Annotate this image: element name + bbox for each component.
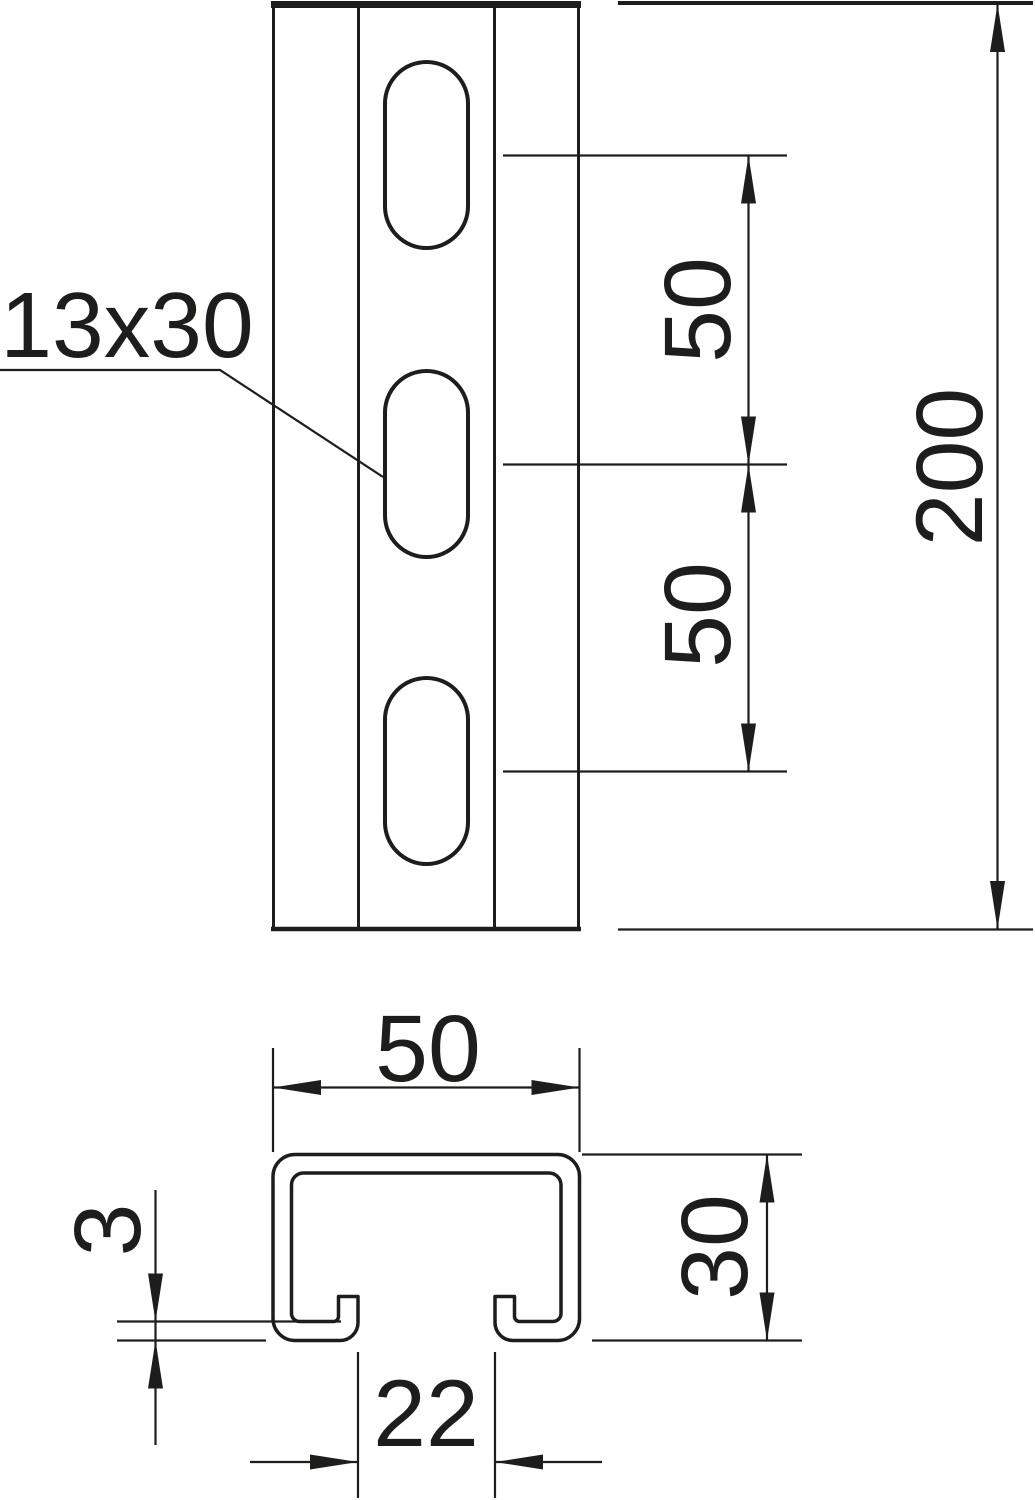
slot-hole-2 xyxy=(385,371,468,557)
dim-text-opening: 22 xyxy=(373,1361,479,1467)
dim-text-pitch-top: 50 xyxy=(645,257,751,363)
dim-text-thickness: 3 xyxy=(55,1204,161,1257)
dim-text-length: 200 xyxy=(897,388,1003,547)
dim-text-pitch-bottom: 50 xyxy=(645,562,751,668)
slot-size-label: 13x30 xyxy=(0,273,253,377)
technical-drawing-canvas: 13x30 50 50 200 xyxy=(0,0,1035,1500)
slot-hole-3 xyxy=(385,678,468,864)
dim-text-width: 50 xyxy=(375,996,481,1102)
dim-text-height: 30 xyxy=(662,1194,768,1300)
slot-hole-1 xyxy=(385,62,468,248)
